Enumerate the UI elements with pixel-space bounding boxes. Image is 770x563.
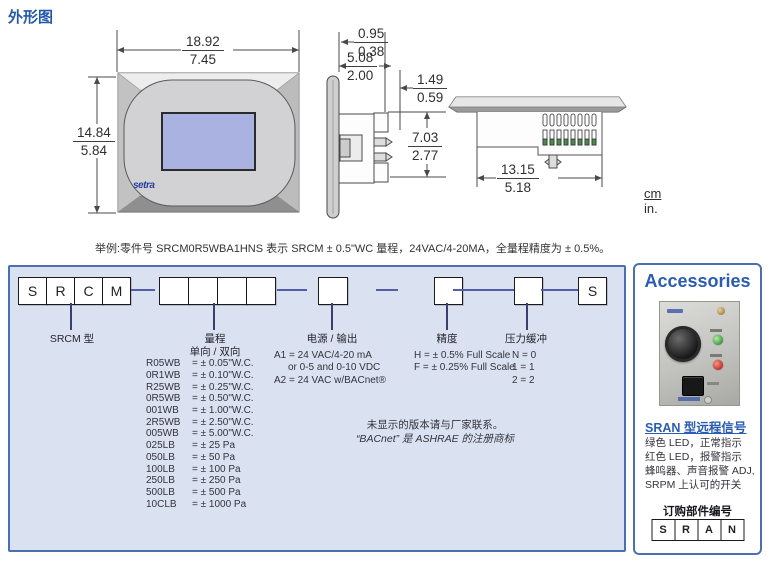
device-logo: setra [133, 180, 154, 191]
model-code-letter: M [102, 277, 131, 305]
note-contact-factory: 未显示的版本请与厂家联系。 [280, 417, 590, 432]
code-connector [453, 289, 514, 291]
range-option-list: R05WB= ± 0.05"W.C. 0R1WB= ± 0.10"W.C. R2… [146, 358, 254, 510]
datasheet-page: 外形图 [0, 0, 770, 563]
model-code-boxes: S R C M [18, 277, 131, 305]
alarm-led-label [710, 354, 722, 357]
dim-side-depth: 5.082.00 [343, 50, 377, 83]
bottom-view-device [449, 97, 626, 168]
accessories-title: Accessories [635, 271, 760, 292]
power-option-list: A1 = 24 VAC/4-20 mA or 0-5 and 0-10 VDC … [274, 350, 386, 387]
range-option: 500LB= ± 500 Pa [146, 487, 254, 499]
code-connector [376, 289, 398, 291]
sran-feature: 蜂鸣器、声音报警 ADJ, [645, 464, 755, 478]
range-option: 025LB= ± 25 Pa [146, 440, 254, 452]
damping-option: 1 = 1 [512, 362, 536, 374]
range-option: 10CLB= ± 1000 Pa [146, 498, 254, 510]
range-option: 050LB= ± 50 Pa [146, 452, 254, 464]
callout-line [70, 303, 72, 330]
damping-code-box-empty [514, 277, 543, 305]
callout-line [446, 303, 448, 330]
damping-label: 压力缓冲 [486, 331, 566, 346]
accuracy-option-list: H = ± 0.5% Full Scale F = ± 0.25% Full S… [414, 350, 515, 375]
range-option: R05WB= ± 0.05"W.C. [146, 358, 254, 370]
code-connector [541, 289, 578, 291]
normal-led-label [710, 329, 722, 332]
suffix-code-box: S [578, 277, 607, 305]
model-code-letter: S [18, 277, 47, 305]
sran-feature: 绿色 LED，正常指示 [645, 436, 755, 450]
code-connector [131, 289, 155, 291]
switch-label [707, 382, 719, 385]
sran-product-photo [659, 301, 740, 406]
order-part-number-label: 订购部件编号 [635, 503, 760, 519]
note-bacnet-trademark: “BACnet” 是 ASHRAE 的注册商标 [280, 431, 590, 446]
range-code-box-empty [217, 277, 247, 305]
dim-front-width: 18.927.45 [182, 34, 224, 67]
model-label: SRCM 型 [30, 331, 114, 346]
switch-icon [682, 376, 704, 396]
sran-feature-list: 绿色 LED，正常指示 红色 LED，报警指示 蜂鸣器、声音报警 ADJ, SR… [645, 436, 755, 492]
part-number-letter: S [651, 519, 675, 541]
part-number-boxes: S R A N [651, 519, 744, 541]
range-option: 0R5WB= ± 0.50"W.C. [146, 393, 254, 405]
dim-side-tab: 1.490.59 [413, 72, 447, 105]
range-option: 100LB= ± 100 Pa [146, 463, 254, 475]
mounting-hole [704, 396, 712, 404]
unit-inch: in. [644, 201, 661, 216]
accuracy-code-box [434, 277, 463, 305]
range-code-box-empty [246, 277, 276, 305]
damping-option-list: N = 0 1 = 1 2 = 2 [512, 350, 536, 387]
range-code-box-empty [159, 277, 189, 305]
accuracy-option: F = ± 0.25% Full Scale [414, 362, 515, 374]
dim-front-height: 14.845.84 [73, 125, 115, 158]
damping-option: N = 0 [512, 350, 536, 362]
brand-logo-mark [667, 309, 683, 313]
dim-bottom-width: 13.155.18 [497, 162, 539, 195]
power-option: A1 = 24 VAC/4-20 mA [274, 350, 386, 362]
power-code-box [318, 277, 348, 305]
range-option: 001WB= ± 1.00"W.C. [146, 405, 254, 417]
ordering-code-panel: S R C M S SRCM 型 [8, 265, 626, 552]
suffix-code-letter: S [578, 277, 607, 305]
range-option: 005WB= ± 5.00"W.C. [146, 428, 254, 440]
example-line: 举例:零件号 SRCM0R5WBA1HNS 表示 SRCM ± 0.5"WC 量… [95, 240, 610, 256]
range-option: 2R5WB= ± 2.50"W.C. [146, 416, 254, 428]
callout-line [331, 303, 333, 330]
damping-code-box [514, 277, 543, 305]
buzzer-icon [665, 326, 701, 362]
sran-feature: 红色 LED，报警指示 [645, 450, 755, 464]
accuracy-option: H = ± 0.5% Full Scale [414, 350, 515, 362]
callout-line [526, 303, 528, 330]
power-code-box-empty [318, 277, 348, 305]
mounting-hole [717, 307, 725, 315]
range-option: 0R1WB= ± 0.10"W.C. [146, 370, 254, 382]
code-connector [277, 289, 307, 291]
side-view-device [327, 76, 392, 218]
range-code-box-empty [188, 277, 218, 305]
power-label: 电源 / 输出 [292, 331, 372, 346]
power-option: or 0-5 and 0-10 VDC [274, 362, 386, 374]
part-number-letter: N [720, 519, 744, 541]
accuracy-code-box-empty [434, 277, 463, 305]
front-view-device [118, 73, 299, 212]
accuracy-label: 精度 [407, 331, 487, 346]
sran-heading: SRAN 型远程信号 [645, 417, 746, 436]
green-led-icon [713, 335, 723, 345]
range-code-boxes [159, 277, 276, 305]
callout-line [213, 303, 215, 330]
model-code-letter: R [46, 277, 75, 305]
damping-option: 2 = 2 [512, 375, 536, 387]
part-number-letter: A [697, 519, 721, 541]
range-option: R25WB= ± 0.25"W.C. [146, 381, 254, 393]
accessories-panel: Accessories SRAN 型远程信号 绿色 LED，正常指示 红色 LE… [633, 263, 762, 555]
unit-cm: cm [644, 186, 661, 201]
range-sublabel: 单向 / 双向 [165, 344, 265, 359]
power-option: A2 = 24 VAC w/BACnet® [274, 375, 386, 387]
model-code-letter: C [74, 277, 103, 305]
sran-feature: SRPM 上认可的开关 [645, 478, 755, 492]
part-number-letter: R [674, 519, 698, 541]
red-led-icon [713, 360, 723, 370]
range-option: 250LB= ± 250 Pa [146, 475, 254, 487]
units-legend: cm in. [644, 186, 661, 216]
dim-side-body-height: 7.032.77 [408, 130, 442, 163]
brand-logo-mark [678, 397, 700, 401]
